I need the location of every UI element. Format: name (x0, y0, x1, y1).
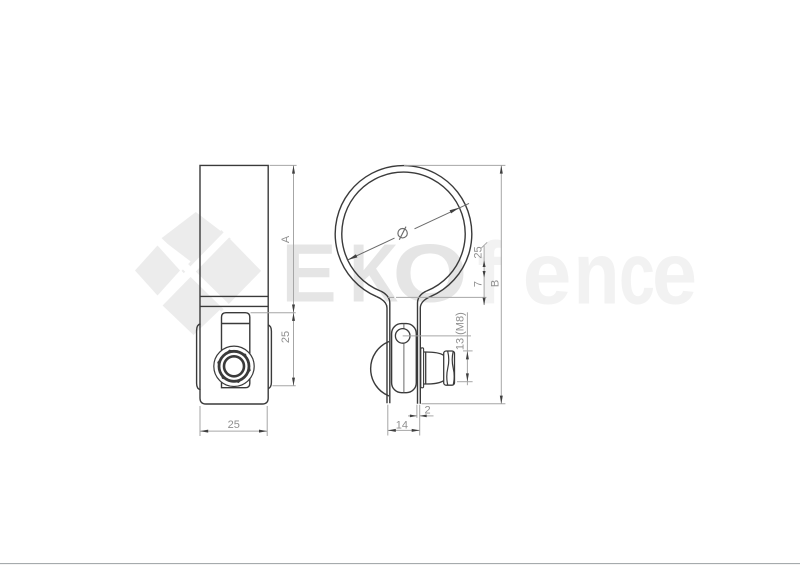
svg-text:A: A (280, 235, 292, 243)
svg-text:25: 25 (280, 331, 292, 343)
svg-text:B: B (490, 280, 502, 287)
svg-text:c: c (619, 224, 655, 323)
svg-text:25: 25 (473, 246, 485, 258)
svg-text:e: e (652, 224, 697, 323)
svg-text:2: 2 (424, 405, 430, 417)
svg-text:e: e (523, 224, 572, 323)
svg-text:14: 14 (396, 420, 408, 432)
svg-text:13 (M8): 13 (M8) (455, 312, 467, 350)
svg-text:O: O (393, 227, 468, 320)
svg-text:n: n (574, 224, 620, 323)
svg-text:7: 7 (473, 281, 485, 287)
svg-text:f: f (478, 224, 503, 323)
svg-text:25: 25 (228, 419, 240, 431)
